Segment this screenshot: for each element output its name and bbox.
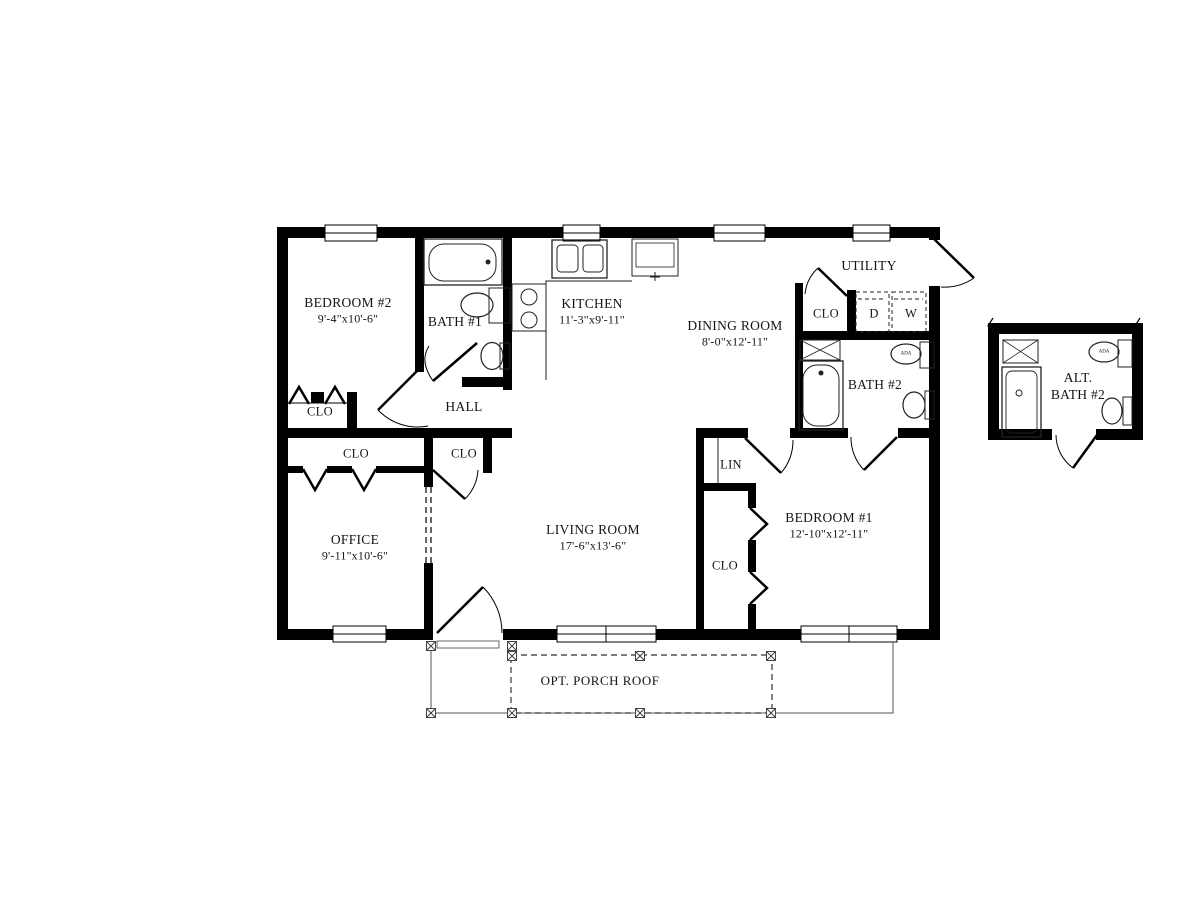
utility-closet-door [805,268,847,296]
dryer-box [856,292,889,332]
window-living [557,626,656,642]
porch-floor-outline [431,643,893,713]
floor-plan-drawing [0,0,1200,900]
porch-posts [427,642,776,718]
bedroom1-bifold [750,572,767,604]
stove-icon [512,284,546,331]
bedroom2-bifold [325,387,345,404]
laundry-appliances [856,292,926,332]
porch [427,642,894,718]
office-bifold [352,469,376,490]
sink-icon [891,342,934,368]
post-icon [508,642,517,651]
kitchen-counter [546,281,632,380]
utility-exterior-door [933,238,974,287]
bathtub-icon [424,239,502,285]
window-utility [853,225,890,241]
alt-bath-fixtures [1002,340,1132,437]
window-office [333,626,386,642]
linen-cabinet-icon [1003,340,1038,363]
front-door [437,587,502,633]
optional-wall-dashed [426,487,431,563]
bath1-fixtures [424,239,510,370]
post-icon [636,652,645,661]
office-bifold [303,469,327,490]
bath2-fixtures [799,340,934,430]
kitchen-fixtures [512,239,678,380]
bedroom2-bifold [289,387,309,404]
window-bedroom1 [801,626,897,642]
bath1-door [425,343,477,381]
hall-closet-door [433,470,478,499]
refrigerator-icon [632,239,678,281]
window-bedroom2 [325,225,377,241]
bathtub-icon [799,361,843,430]
toilet-icon [1102,397,1132,425]
interior-walls [277,238,940,640]
post-icon [767,709,776,718]
floor-plan-page: BEDROOM #2 9'-4"x10'-6" BATH #1 KITCHEN … [0,0,1200,900]
alt-bath-walls [988,323,1143,440]
kitchen-sink [552,240,607,278]
shower-icon [1002,367,1041,437]
post-icon [636,709,645,718]
bedroom1-bifold [750,508,767,540]
bedroom1-door [851,437,897,470]
front-door-sill [437,641,499,648]
linen-closet-door [745,438,793,473]
sink-icon [1089,340,1132,367]
bedroom2-door [378,371,428,427]
sink-icon [461,288,510,323]
porch-roof-dashed [511,655,772,713]
post-icon [427,709,436,718]
window-kitchen [563,225,600,241]
alt-bath-door [1056,435,1097,468]
post-icon [508,709,517,718]
post-icon [427,642,436,651]
window-dining [714,225,765,241]
washer-box [892,292,926,332]
linen-cabinet-icon [800,340,840,360]
post-icon [767,652,776,661]
bifold-doors [288,387,767,604]
post-icon [508,652,517,661]
